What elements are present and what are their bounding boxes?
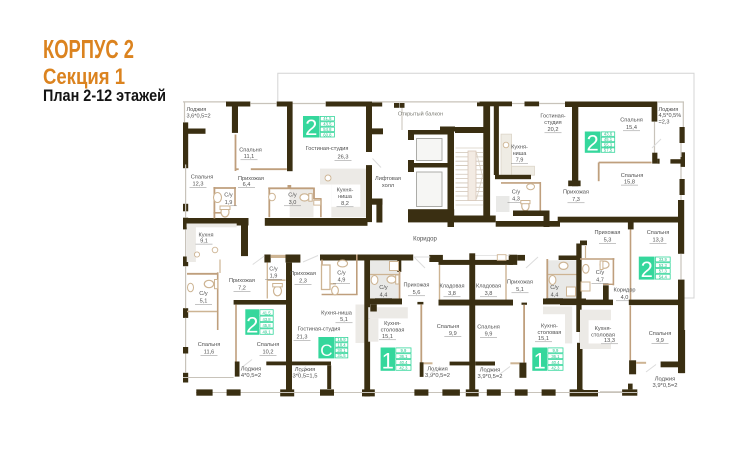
svg-text:С/у: С/у bbox=[379, 285, 388, 291]
svg-text:4,9: 4,9 bbox=[338, 278, 346, 284]
svg-text:13,3: 13,3 bbox=[653, 238, 664, 244]
svg-text:1,9: 1,9 bbox=[225, 200, 233, 206]
svg-text:1: 1 bbox=[382, 348, 394, 373]
svg-text:54,8: 54,8 bbox=[323, 127, 332, 132]
svg-text:Гостиная-студия: Гостиная-студия bbox=[298, 327, 341, 333]
svg-text:11,6: 11,6 bbox=[204, 350, 214, 356]
svg-text:57,3: 57,3 bbox=[659, 269, 668, 274]
svg-text:43,6: 43,6 bbox=[604, 132, 613, 137]
svg-text:9,1: 9,1 bbox=[200, 238, 208, 244]
svg-text:Прихожая: Прихожая bbox=[563, 190, 589, 196]
svg-text:15,8: 15,8 bbox=[624, 179, 635, 185]
svg-text:Прихожая: Прихожая bbox=[229, 278, 255, 284]
svg-text:9,9: 9,9 bbox=[449, 331, 457, 337]
svg-text:4*0,5=2: 4*0,5=2 bbox=[241, 373, 261, 379]
svg-text:4,3: 4,3 bbox=[512, 197, 520, 203]
svg-text:Лоджия: Лоджия bbox=[427, 367, 448, 373]
svg-text:40,4: 40,4 bbox=[551, 360, 560, 365]
svg-text:Лоджия: Лоджия bbox=[480, 368, 501, 374]
svg-text:Спальня: Спальня bbox=[257, 342, 279, 348]
svg-text:Коридор: Коридор bbox=[413, 237, 437, 243]
svg-text:Кухня-: Кухня- bbox=[384, 321, 401, 327]
svg-text:4,7: 4,7 bbox=[596, 278, 604, 284]
svg-text:Спальня: Спальня bbox=[647, 230, 669, 236]
svg-text:4,4: 4,4 bbox=[380, 293, 388, 299]
svg-text:13,3: 13,3 bbox=[604, 338, 615, 344]
svg-text:41,5: 41,5 bbox=[262, 310, 271, 315]
svg-text:Секция 1: Секция 1 bbox=[43, 64, 125, 89]
svg-text:54,4: 54,4 bbox=[659, 274, 668, 279]
svg-text:10,2: 10,2 bbox=[263, 350, 274, 356]
svg-text:5,1: 5,1 bbox=[516, 287, 524, 293]
svg-text:3,6*0,5=2: 3,6*0,5=2 bbox=[187, 114, 211, 120]
svg-text:3,9*0,5=2: 3,9*0,5=2 bbox=[425, 373, 450, 379]
svg-text:4,0: 4,0 bbox=[621, 295, 629, 301]
svg-text:11,1: 11,1 bbox=[244, 154, 254, 160]
svg-text:7,3: 7,3 bbox=[572, 197, 580, 203]
svg-text:15,4: 15,4 bbox=[626, 125, 637, 131]
svg-text:холл: холл bbox=[382, 183, 394, 189]
svg-text:5,3: 5,3 bbox=[604, 238, 612, 244]
svg-text:Прихожая: Прихожая bbox=[595, 230, 621, 236]
svg-text:40,4: 40,4 bbox=[399, 360, 408, 365]
svg-text:Лоджия: Лоджия bbox=[187, 107, 207, 113]
svg-text:3,9*0,5=2: 3,9*0,5=2 bbox=[653, 383, 678, 389]
svg-text:КОРПУС 2: КОРПУС 2 bbox=[43, 34, 134, 64]
svg-text:8,2: 8,2 bbox=[341, 201, 349, 207]
svg-text:Лоджия: Лоджия bbox=[659, 107, 679, 113]
svg-text:30,1: 30,1 bbox=[337, 348, 346, 353]
svg-text:3,9*0,5=2: 3,9*0,5=2 bbox=[478, 374, 503, 380]
svg-text:2: 2 bbox=[587, 130, 599, 155]
svg-text:45,1: 45,1 bbox=[604, 137, 613, 142]
svg-text:Спальня: Спальня bbox=[191, 175, 213, 181]
svg-text:С/у: С/у bbox=[596, 270, 605, 276]
svg-text:4,4: 4,4 bbox=[551, 293, 559, 299]
svg-text:Спальня: Спальня bbox=[239, 148, 261, 154]
svg-text:Спальня: Спальня bbox=[620, 118, 642, 124]
svg-text:7,2: 7,2 bbox=[238, 286, 246, 292]
svg-text:3,8: 3,8 bbox=[448, 291, 456, 297]
svg-text:43,8: 43,8 bbox=[262, 317, 271, 322]
svg-text:1: 1 bbox=[534, 348, 546, 373]
svg-text:Спальня: Спальня bbox=[198, 342, 220, 348]
svg-text:3,8: 3,8 bbox=[485, 291, 493, 297]
svg-text:18,4: 18,4 bbox=[337, 343, 346, 348]
svg-text:5,1: 5,1 bbox=[200, 299, 208, 305]
svg-text:Лифтовая: Лифтовая bbox=[375, 176, 401, 182]
svg-text:42,3: 42,3 bbox=[551, 366, 560, 371]
svg-text:26,3: 26,3 bbox=[338, 155, 349, 161]
svg-text:Лоджия: Лоджия bbox=[241, 367, 262, 373]
svg-text:45,8: 45,8 bbox=[262, 323, 271, 328]
svg-text:9,9: 9,9 bbox=[656, 338, 664, 344]
svg-text:Прихожая: Прихожая bbox=[507, 280, 533, 286]
svg-text:4,5*0,5%: 4,5*0,5% bbox=[659, 113, 682, 119]
svg-text:3,0: 3,0 bbox=[289, 200, 297, 206]
svg-text:12,3: 12,3 bbox=[193, 182, 204, 188]
svg-text:Кухня-: Кухня- bbox=[511, 145, 528, 151]
svg-text:20,2: 20,2 bbox=[548, 127, 559, 133]
svg-text:9,9: 9,9 bbox=[552, 348, 558, 353]
svg-text:Прихожая: Прихожая bbox=[290, 271, 316, 277]
svg-text:15,1: 15,1 bbox=[538, 336, 549, 342]
svg-text:2: 2 bbox=[641, 257, 653, 282]
svg-text:Кухня-: Кухня- bbox=[337, 188, 354, 194]
svg-text:16,9: 16,9 bbox=[337, 337, 346, 342]
svg-text:33,9: 33,9 bbox=[659, 257, 668, 262]
svg-text:60,8: 60,8 bbox=[323, 132, 332, 137]
svg-text:42,3: 42,3 bbox=[399, 366, 408, 371]
svg-text:=2,3: =2,3 bbox=[659, 119, 670, 125]
svg-text:Кухня-ниша: Кухня-ниша bbox=[321, 311, 353, 317]
svg-text:Гостиная-студия: Гостиная-студия bbox=[306, 146, 349, 152]
svg-text:41,5: 41,5 bbox=[323, 116, 332, 121]
svg-text:9,9: 9,9 bbox=[485, 332, 493, 338]
svg-text:Гостиная-: Гостиная- bbox=[540, 114, 565, 120]
svg-text:43,5: 43,5 bbox=[323, 122, 332, 127]
svg-text:6,4: 6,4 bbox=[243, 182, 251, 188]
svg-text:Прихожая: Прихожая bbox=[404, 283, 430, 289]
svg-text:5,6: 5,6 bbox=[413, 290, 421, 296]
svg-text:столовая: столовая bbox=[381, 328, 405, 334]
svg-text:55,3: 55,3 bbox=[604, 142, 613, 147]
svg-text:2: 2 bbox=[305, 115, 317, 140]
svg-text:С/у: С/у bbox=[224, 193, 233, 199]
svg-text:ниша: ниша bbox=[513, 151, 528, 157]
svg-text:Лоджия: Лоджия bbox=[655, 377, 676, 383]
svg-text:Спальня: Спальня bbox=[621, 173, 643, 179]
svg-text:36,1: 36,1 bbox=[399, 354, 408, 359]
svg-text:2: 2 bbox=[246, 312, 258, 337]
svg-text:9,9: 9,9 bbox=[400, 348, 406, 353]
svg-text:7,9: 7,9 bbox=[516, 158, 524, 164]
svg-text:С/у: С/у bbox=[199, 291, 208, 297]
svg-text:1,9: 1,9 bbox=[270, 274, 278, 280]
svg-text:53,3: 53,3 bbox=[659, 263, 668, 268]
svg-text:С/у: С/у bbox=[288, 193, 297, 199]
svg-text:21,3: 21,3 bbox=[297, 335, 308, 341]
svg-text:С/у: С/у bbox=[269, 267, 278, 273]
svg-text:Спальня: Спальня bbox=[477, 325, 499, 331]
svg-text:31,5: 31,5 bbox=[337, 353, 346, 358]
svg-text:Кладовая: Кладовая bbox=[439, 284, 464, 290]
svg-text:С/у: С/у bbox=[337, 271, 346, 277]
svg-text:2,3: 2,3 bbox=[299, 279, 307, 285]
svg-text:57,5: 57,5 bbox=[604, 148, 613, 153]
svg-text:36,1: 36,1 bbox=[551, 354, 560, 359]
svg-text:Кухня-: Кухня- bbox=[541, 324, 558, 330]
svg-text:С: С bbox=[320, 341, 332, 360]
svg-text:Кладовая: Кладовая bbox=[476, 284, 501, 290]
svg-text:Спальня: Спальня bbox=[649, 331, 671, 337]
svg-text:Коридор: Коридор bbox=[613, 288, 635, 294]
svg-text:ниша: ниша bbox=[338, 194, 353, 200]
svg-text:студия: студия bbox=[544, 120, 561, 126]
svg-text:3*0,5=1,5: 3*0,5=1,5 bbox=[293, 374, 318, 380]
svg-text:Кухня-: Кухня- bbox=[595, 326, 612, 332]
svg-text:С/у: С/у bbox=[512, 190, 521, 196]
svg-text:5,1: 5,1 bbox=[340, 317, 348, 323]
svg-text:49,1: 49,1 bbox=[262, 330, 271, 335]
svg-text:15,1: 15,1 bbox=[382, 334, 393, 340]
svg-text:С/у: С/у bbox=[550, 285, 559, 291]
svg-text:План 2-12 этажей: План 2-12 этажей bbox=[43, 87, 166, 105]
svg-text:Открытый балкон: Открытый балкон bbox=[398, 111, 443, 118]
svg-text:Спальня: Спальня bbox=[437, 324, 459, 330]
